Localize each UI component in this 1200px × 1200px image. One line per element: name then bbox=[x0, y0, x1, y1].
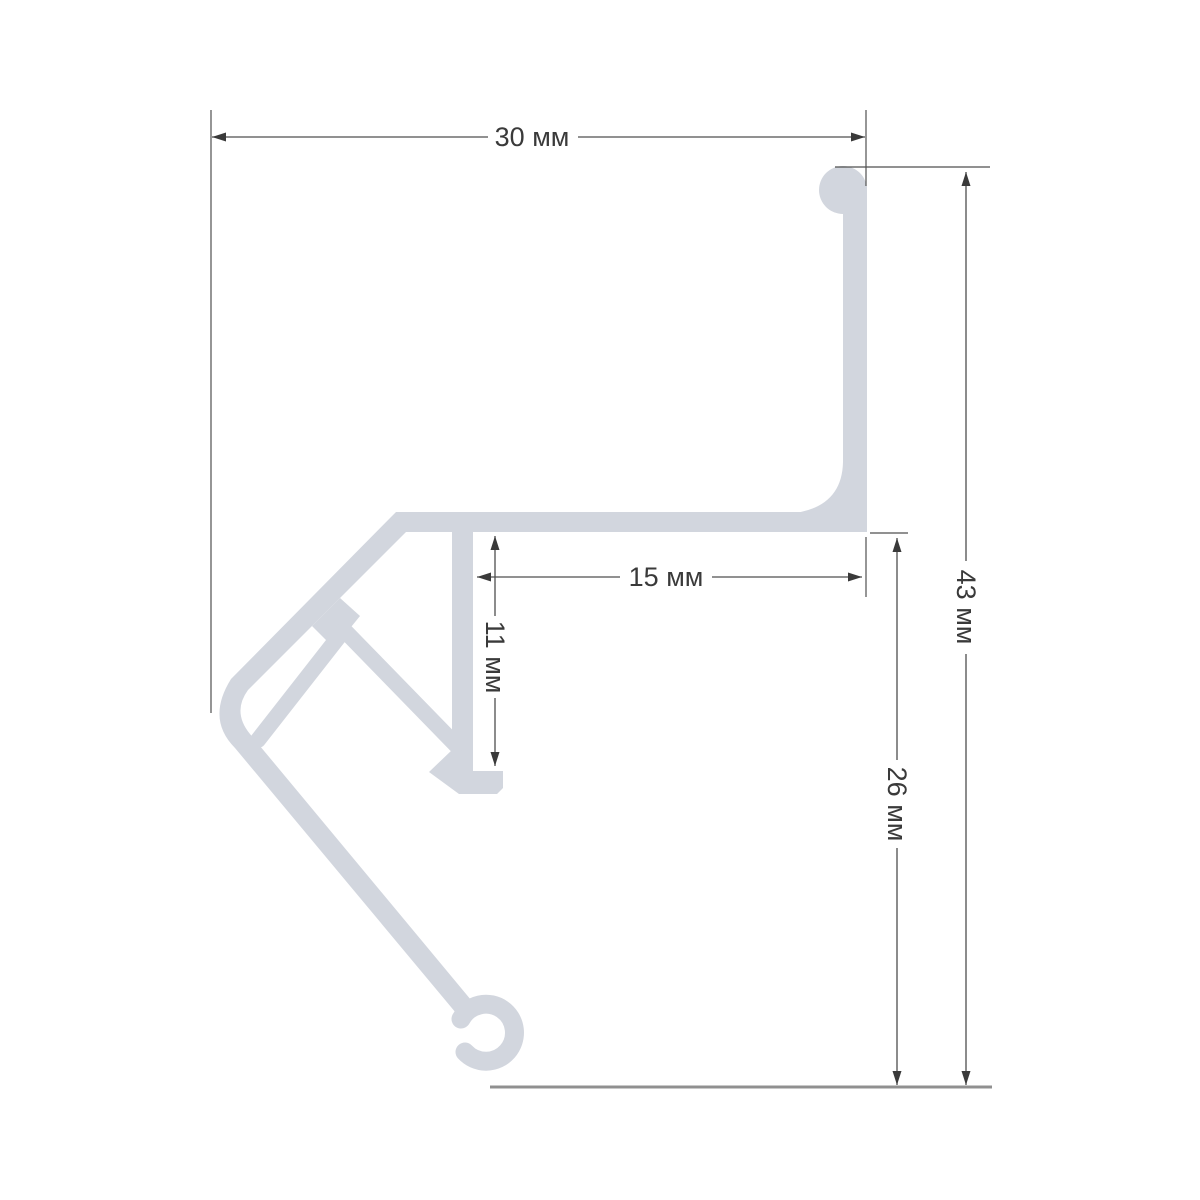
profile-right-bar bbox=[843, 186, 867, 532]
profile-hook bbox=[461, 1004, 514, 1061]
dim-label-26mm: 26 мм bbox=[882, 767, 912, 842]
profile-drawing: 30 мм 15 мм 11 мм 43 мм 26 мм bbox=[0, 0, 1200, 1200]
arrow-15mm-left bbox=[477, 573, 491, 582]
arrow-26mm-down bbox=[893, 1071, 902, 1085]
dimension-labels: 30 мм 15 мм 11 мм 43 мм 26 мм bbox=[480, 122, 981, 841]
profile-shape bbox=[219, 166, 867, 1025]
arrow-30mm-right bbox=[851, 133, 865, 142]
profile-foot bbox=[429, 738, 503, 794]
arrow-43mm-down bbox=[962, 1071, 971, 1085]
drawing-canvas: 30 мм 15 мм 11 мм 43 мм 26 мм bbox=[0, 0, 1200, 1200]
dim-label-11mm: 11 мм bbox=[480, 621, 510, 694]
arrow-26mm-up bbox=[893, 538, 902, 552]
arrow-11mm-down bbox=[491, 752, 500, 766]
arrow-43mm-up bbox=[962, 172, 971, 186]
dim-label-30mm: 30 мм bbox=[495, 122, 570, 152]
arrow-30mm-left bbox=[212, 133, 226, 142]
dim-label-15mm: 15 мм bbox=[629, 562, 704, 592]
arrow-11mm-up bbox=[491, 536, 500, 550]
arrow-15mm-right bbox=[848, 573, 862, 582]
dim-label-43mm: 43 мм bbox=[951, 570, 981, 645]
profile-fillet bbox=[786, 462, 843, 514]
